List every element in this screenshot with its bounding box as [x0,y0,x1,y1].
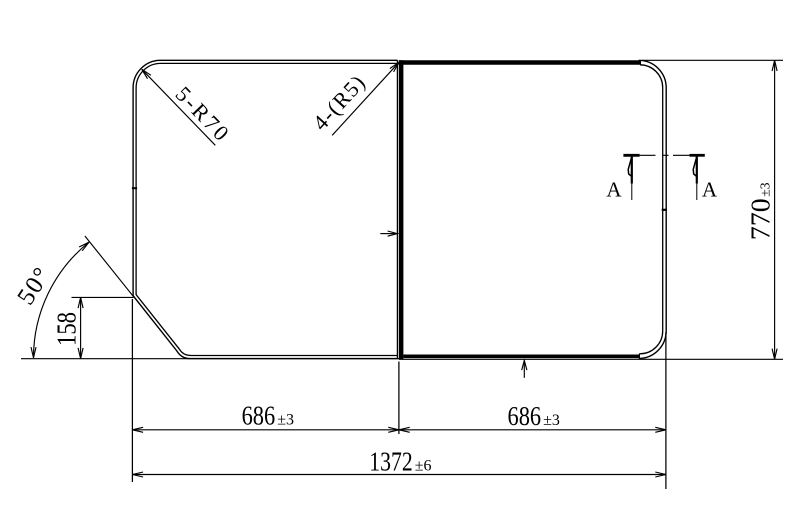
svg-text:A: A [606,177,622,201]
svg-text:158: 158 [52,312,82,346]
svg-text:A: A [702,177,718,201]
